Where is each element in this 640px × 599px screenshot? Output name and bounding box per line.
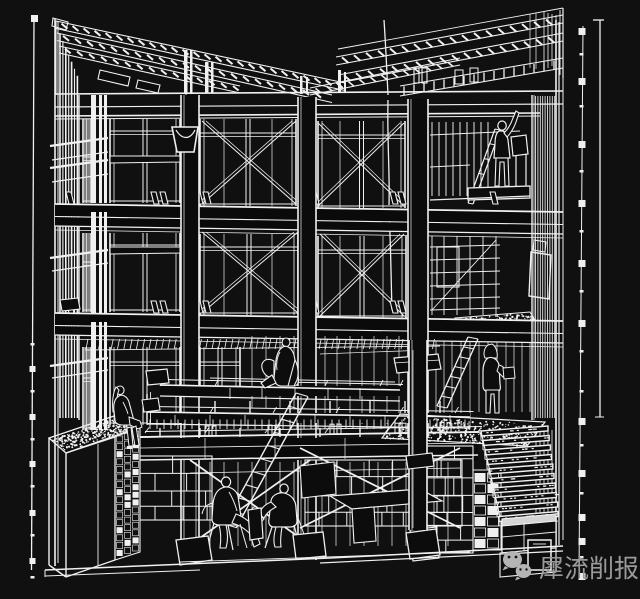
svg-text:犀流削报: 犀流削报 — [539, 555, 639, 583]
